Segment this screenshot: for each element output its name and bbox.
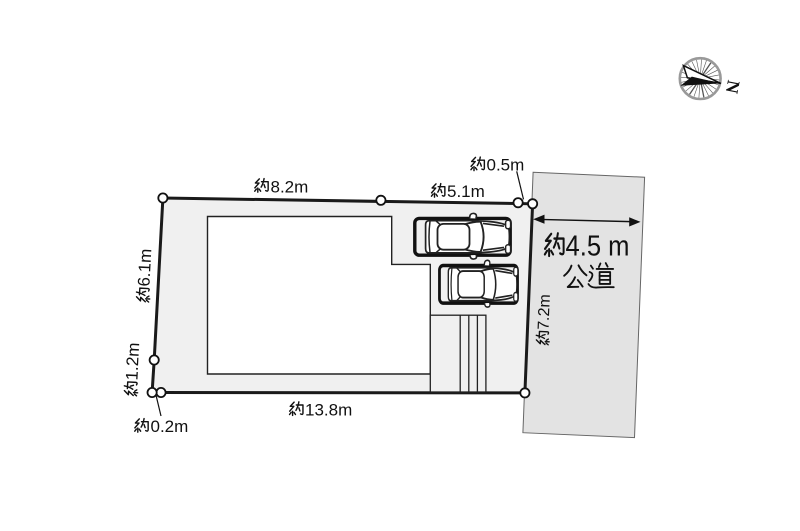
- svg-text:N: N: [722, 79, 744, 96]
- svg-text:5.1m: 5.1m: [447, 182, 485, 201]
- svg-text:8.2m: 8.2m: [271, 177, 309, 196]
- svg-text:4.5 m: 4.5 m: [566, 231, 630, 263]
- svg-text:0.5m: 0.5m: [487, 156, 525, 175]
- svg-text:0.2m: 0.2m: [151, 417, 189, 436]
- svg-text:7.2m: 7.2m: [535, 294, 553, 330]
- svg-text:13.8m: 13.8m: [305, 400, 352, 419]
- svg-text:6.1m: 6.1m: [134, 248, 155, 287]
- svg-text:1.2m: 1.2m: [122, 342, 143, 381]
